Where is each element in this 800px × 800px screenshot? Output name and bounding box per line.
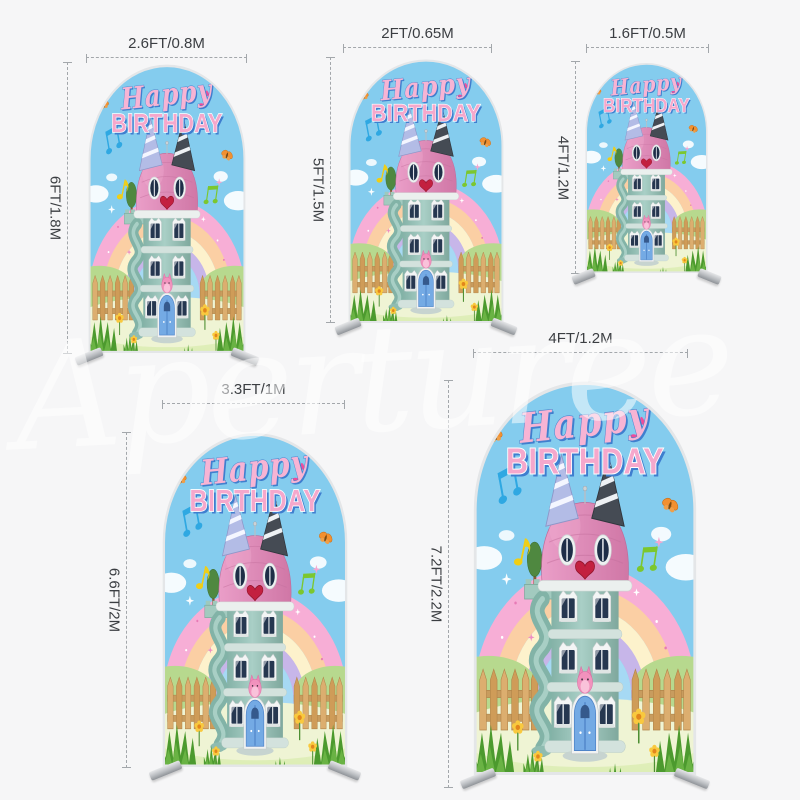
width-label: 4FT/1.2M [473, 330, 688, 347]
width-dimension-arch1: 2.6FT/0.8M [86, 35, 247, 58]
width-dimension-arch3: 1.6FT/0.5M [586, 25, 709, 48]
backdrop-arch-4ft [473, 378, 697, 775]
height-dimension-arch4: 6.6FT/2M [126, 432, 127, 768]
height-dimension-arch1: 6FT/1.8M [67, 62, 68, 354]
backdrop-artwork [88, 62, 246, 353]
width-dimension-arch4: 3.3FT/1M [162, 381, 345, 404]
width-label: 2.6FT/0.8M [86, 35, 247, 52]
backdrop-size-chart: Happy Happy BIRTHDAY BIRTHDAY 2.6FT/0.8M… [0, 0, 800, 800]
width-dimension-arch5: 4FT/1.2M [473, 330, 688, 353]
backdrop-arch-2ft [348, 57, 504, 323]
backdrop-arch-1-6ft [585, 61, 708, 273]
backdrop-artwork [473, 378, 697, 775]
dimension-line-horizontal [86, 57, 247, 58]
backdrop-arch-3-3ft [162, 430, 348, 767]
dimension-line-horizontal [162, 403, 345, 404]
width-label: 2FT/0.65M [343, 25, 492, 42]
width-label: 1.6FT/0.5M [586, 25, 709, 42]
backdrop-arch-2-6ft [88, 62, 246, 353]
backdrop-artwork [585, 61, 708, 273]
dimension-line-horizontal [586, 47, 709, 48]
stand-foot-right [697, 268, 722, 285]
height-label: 7.2FT/2.2M [428, 546, 445, 623]
backdrop-artwork [162, 430, 348, 767]
height-label: 6FT/1.8M [47, 176, 64, 240]
width-dimension-arch2: 2FT/0.65M [343, 25, 492, 48]
height-label: 4FT/1.2M [555, 135, 572, 199]
height-dimension-arch2: 5FT/1.5M [330, 57, 331, 323]
dimension-line-horizontal [473, 352, 688, 353]
height-label: 6.6FT/2M [106, 568, 123, 632]
height-dimension-arch3: 4FT/1.2M [575, 61, 576, 274]
backdrop-artwork [348, 57, 504, 323]
height-dimension-arch5: 7.2FT/2.2M [448, 380, 449, 788]
width-label: 3.3FT/1M [162, 381, 345, 398]
height-label: 5FT/1.5M [310, 158, 327, 222]
dimension-line-horizontal [343, 47, 492, 48]
